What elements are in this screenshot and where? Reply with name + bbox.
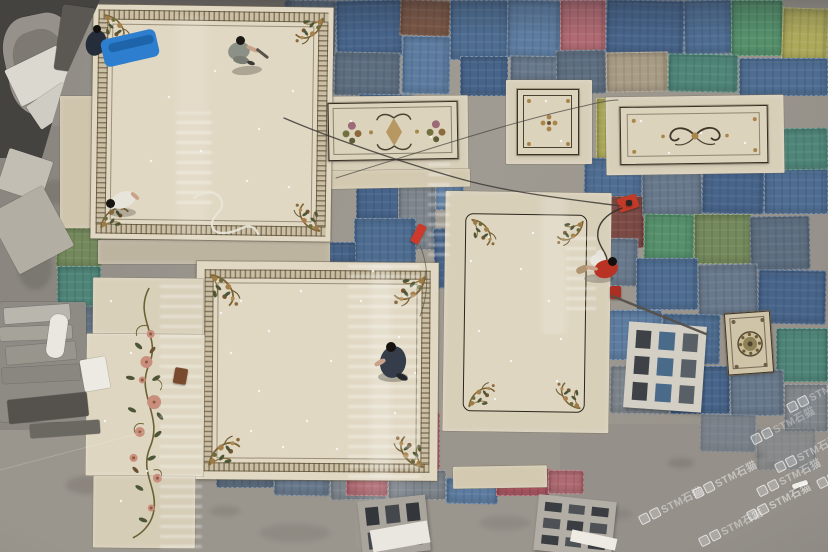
worker-bent-white-shirt-part [108, 208, 136, 217]
worker-navy-with-blue-pad [84, 22, 148, 74]
workshop-aerial-photo: STM石猫STM石猫STM石猫STM石猫STM石猫STM石猫STM石猫STM石猫… [0, 0, 828, 552]
worker-squatting-gray-shirt [226, 36, 290, 88]
workers-pair-red-and-white [576, 252, 640, 304]
workers-pair-red-and-white-part [596, 250, 604, 258]
worker-navy-with-blue-pad-part [93, 25, 101, 33]
worker-squatting-gray-shirt-part [236, 36, 245, 45]
worker-crouching-navy [374, 342, 438, 394]
worker-crouching-navy-part [386, 342, 396, 352]
worker-squatting-gray-shirt-part [232, 65, 263, 77]
worker-squatting-gray-shirt-part [256, 48, 269, 59]
worker-bent-white-shirt [104, 186, 168, 238]
worker-bent-white-shirt-part [106, 199, 115, 208]
workers-pair-red-and-white-part [608, 257, 617, 266]
people-layer [0, 0, 828, 552]
